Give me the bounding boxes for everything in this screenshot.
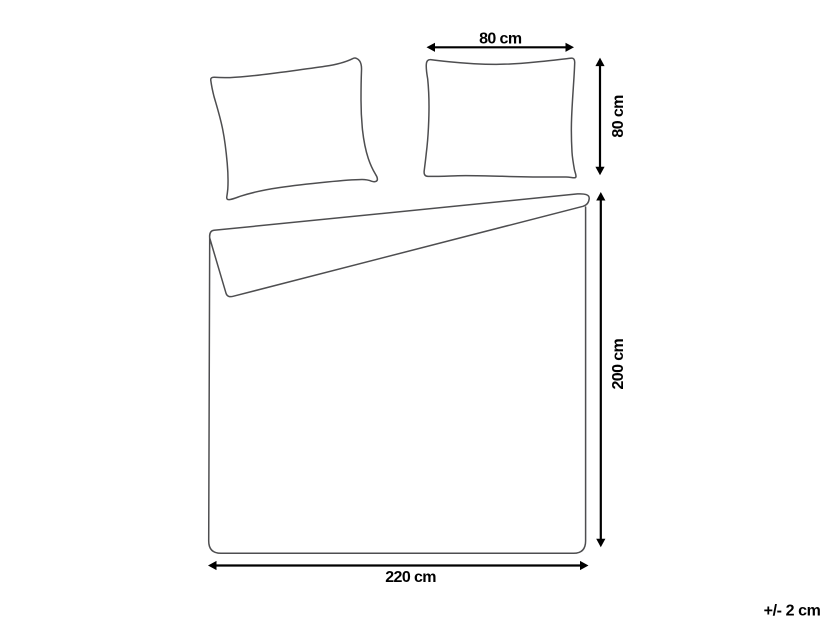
svg-text:80 cm: 80 cm: [479, 31, 522, 48]
svg-text:80 cm: 80 cm: [610, 95, 627, 138]
svg-text:+/- 2 cm: +/- 2 cm: [764, 602, 821, 619]
svg-text:200 cm: 200 cm: [610, 338, 627, 389]
svg-text:220 cm: 220 cm: [385, 569, 436, 586]
